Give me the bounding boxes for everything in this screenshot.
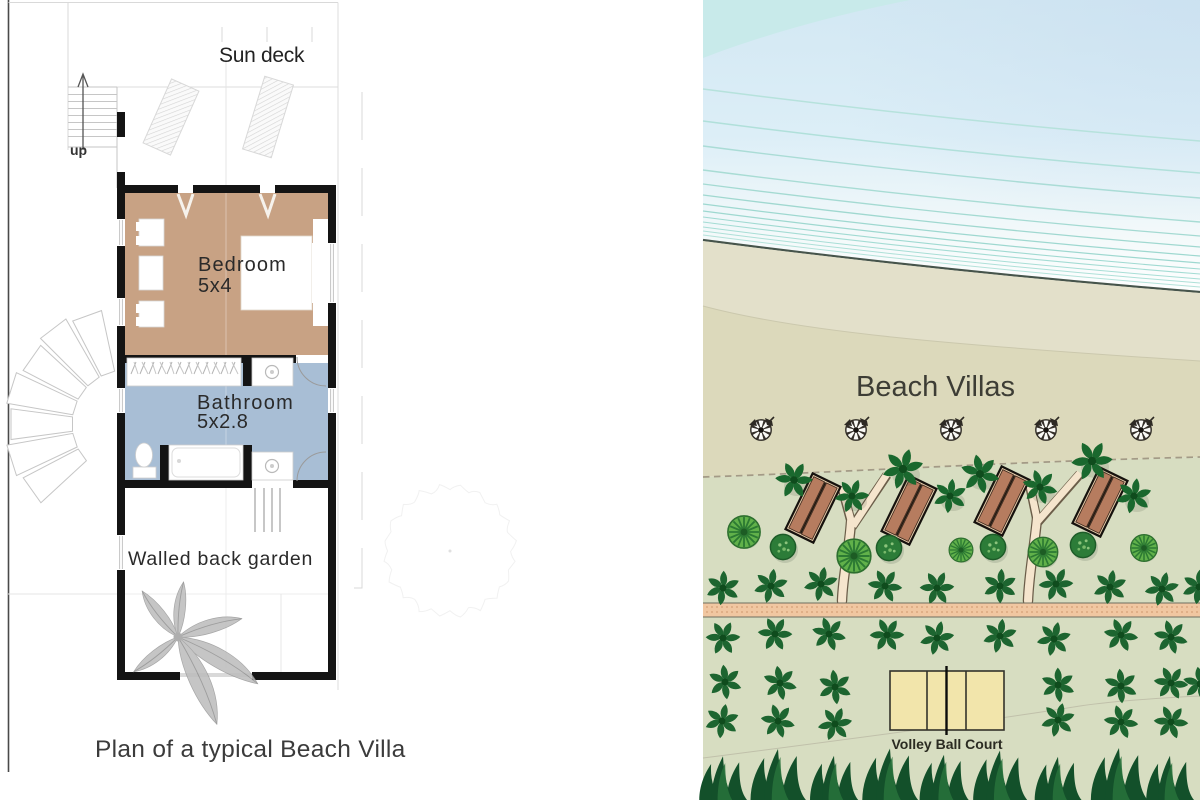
svg-text:up: up xyxy=(70,142,87,158)
svg-text:Bedroom: Bedroom xyxy=(198,254,287,276)
svg-text:Walled back garden: Walled back garden xyxy=(128,548,313,570)
svg-text:Volley Ball Court: Volley Ball Court xyxy=(892,736,1003,752)
svg-text:Sun deck: Sun deck xyxy=(219,44,305,67)
svg-text:Plan of a typical Beach Villa: Plan of a typical Beach Villa xyxy=(95,736,406,763)
svg-text:Beach Villas: Beach Villas xyxy=(856,371,1015,403)
svg-text:5x4: 5x4 xyxy=(198,275,232,297)
svg-text:5x2.8: 5x2.8 xyxy=(197,411,248,433)
